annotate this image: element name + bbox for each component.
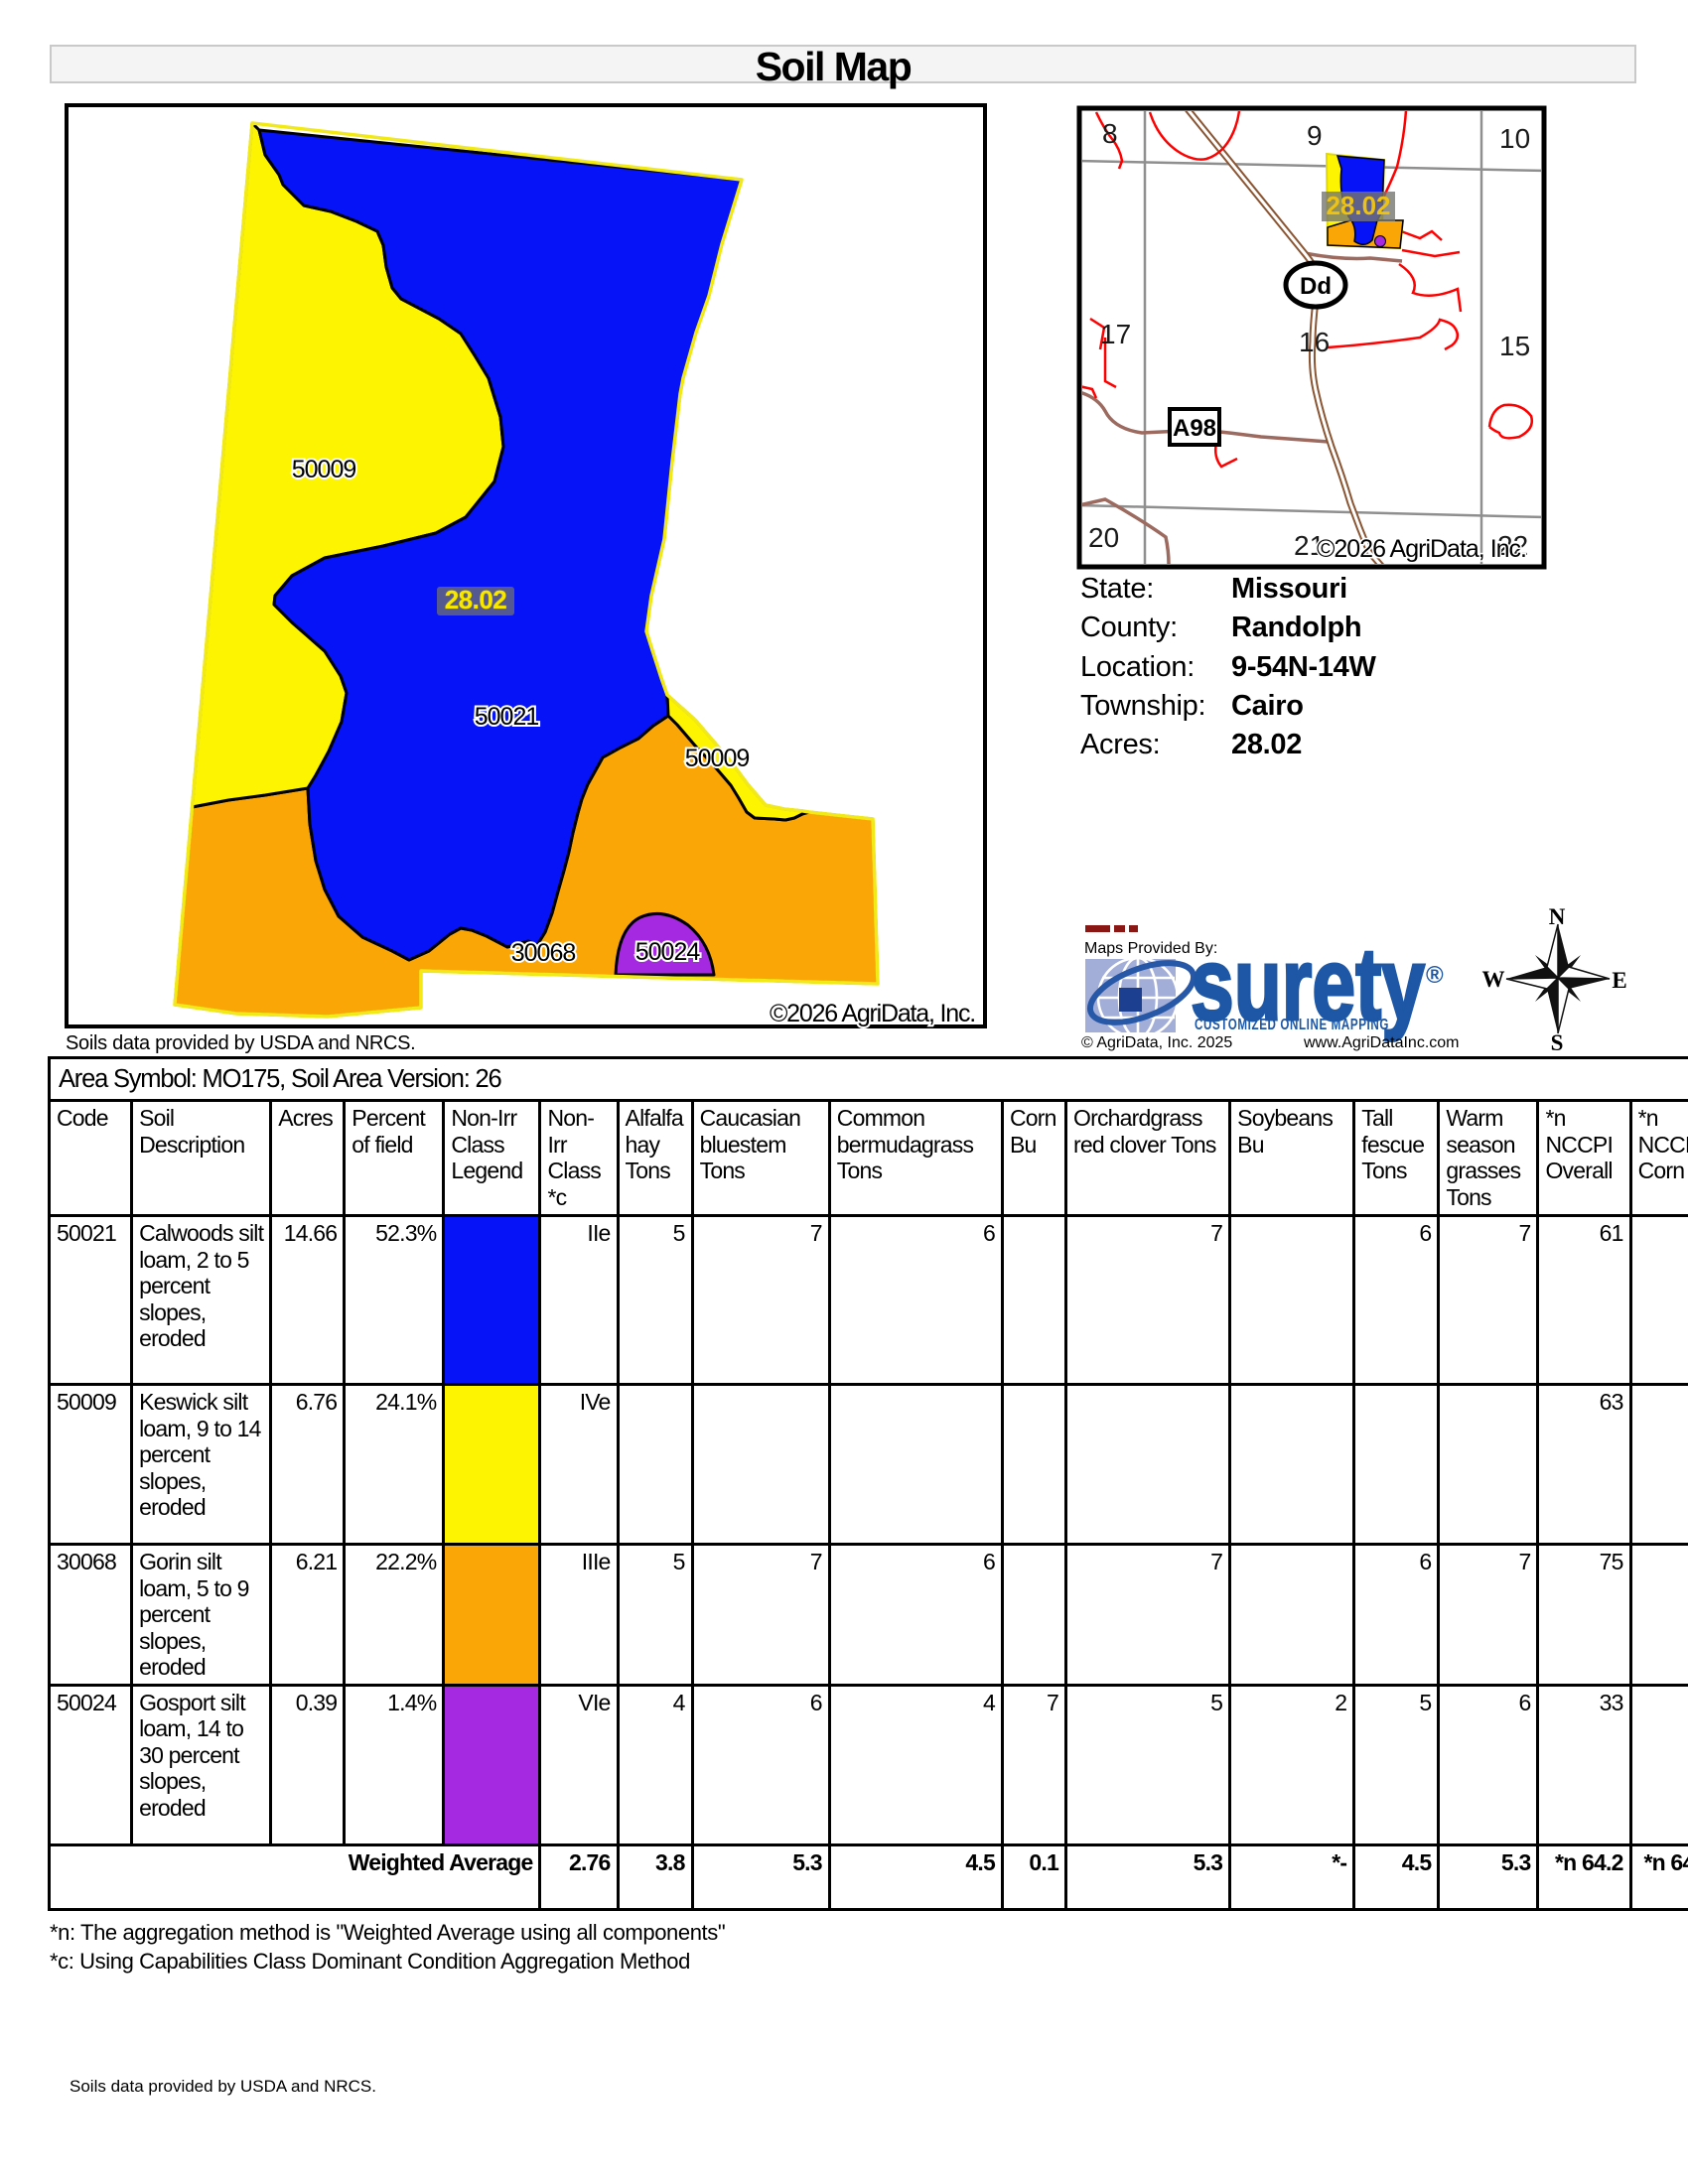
svg-text:N: N — [1549, 904, 1566, 929]
svg-text:E: E — [1612, 968, 1626, 993]
svg-text:W: W — [1482, 967, 1505, 992]
svg-text:S: S — [1551, 1030, 1564, 1055]
